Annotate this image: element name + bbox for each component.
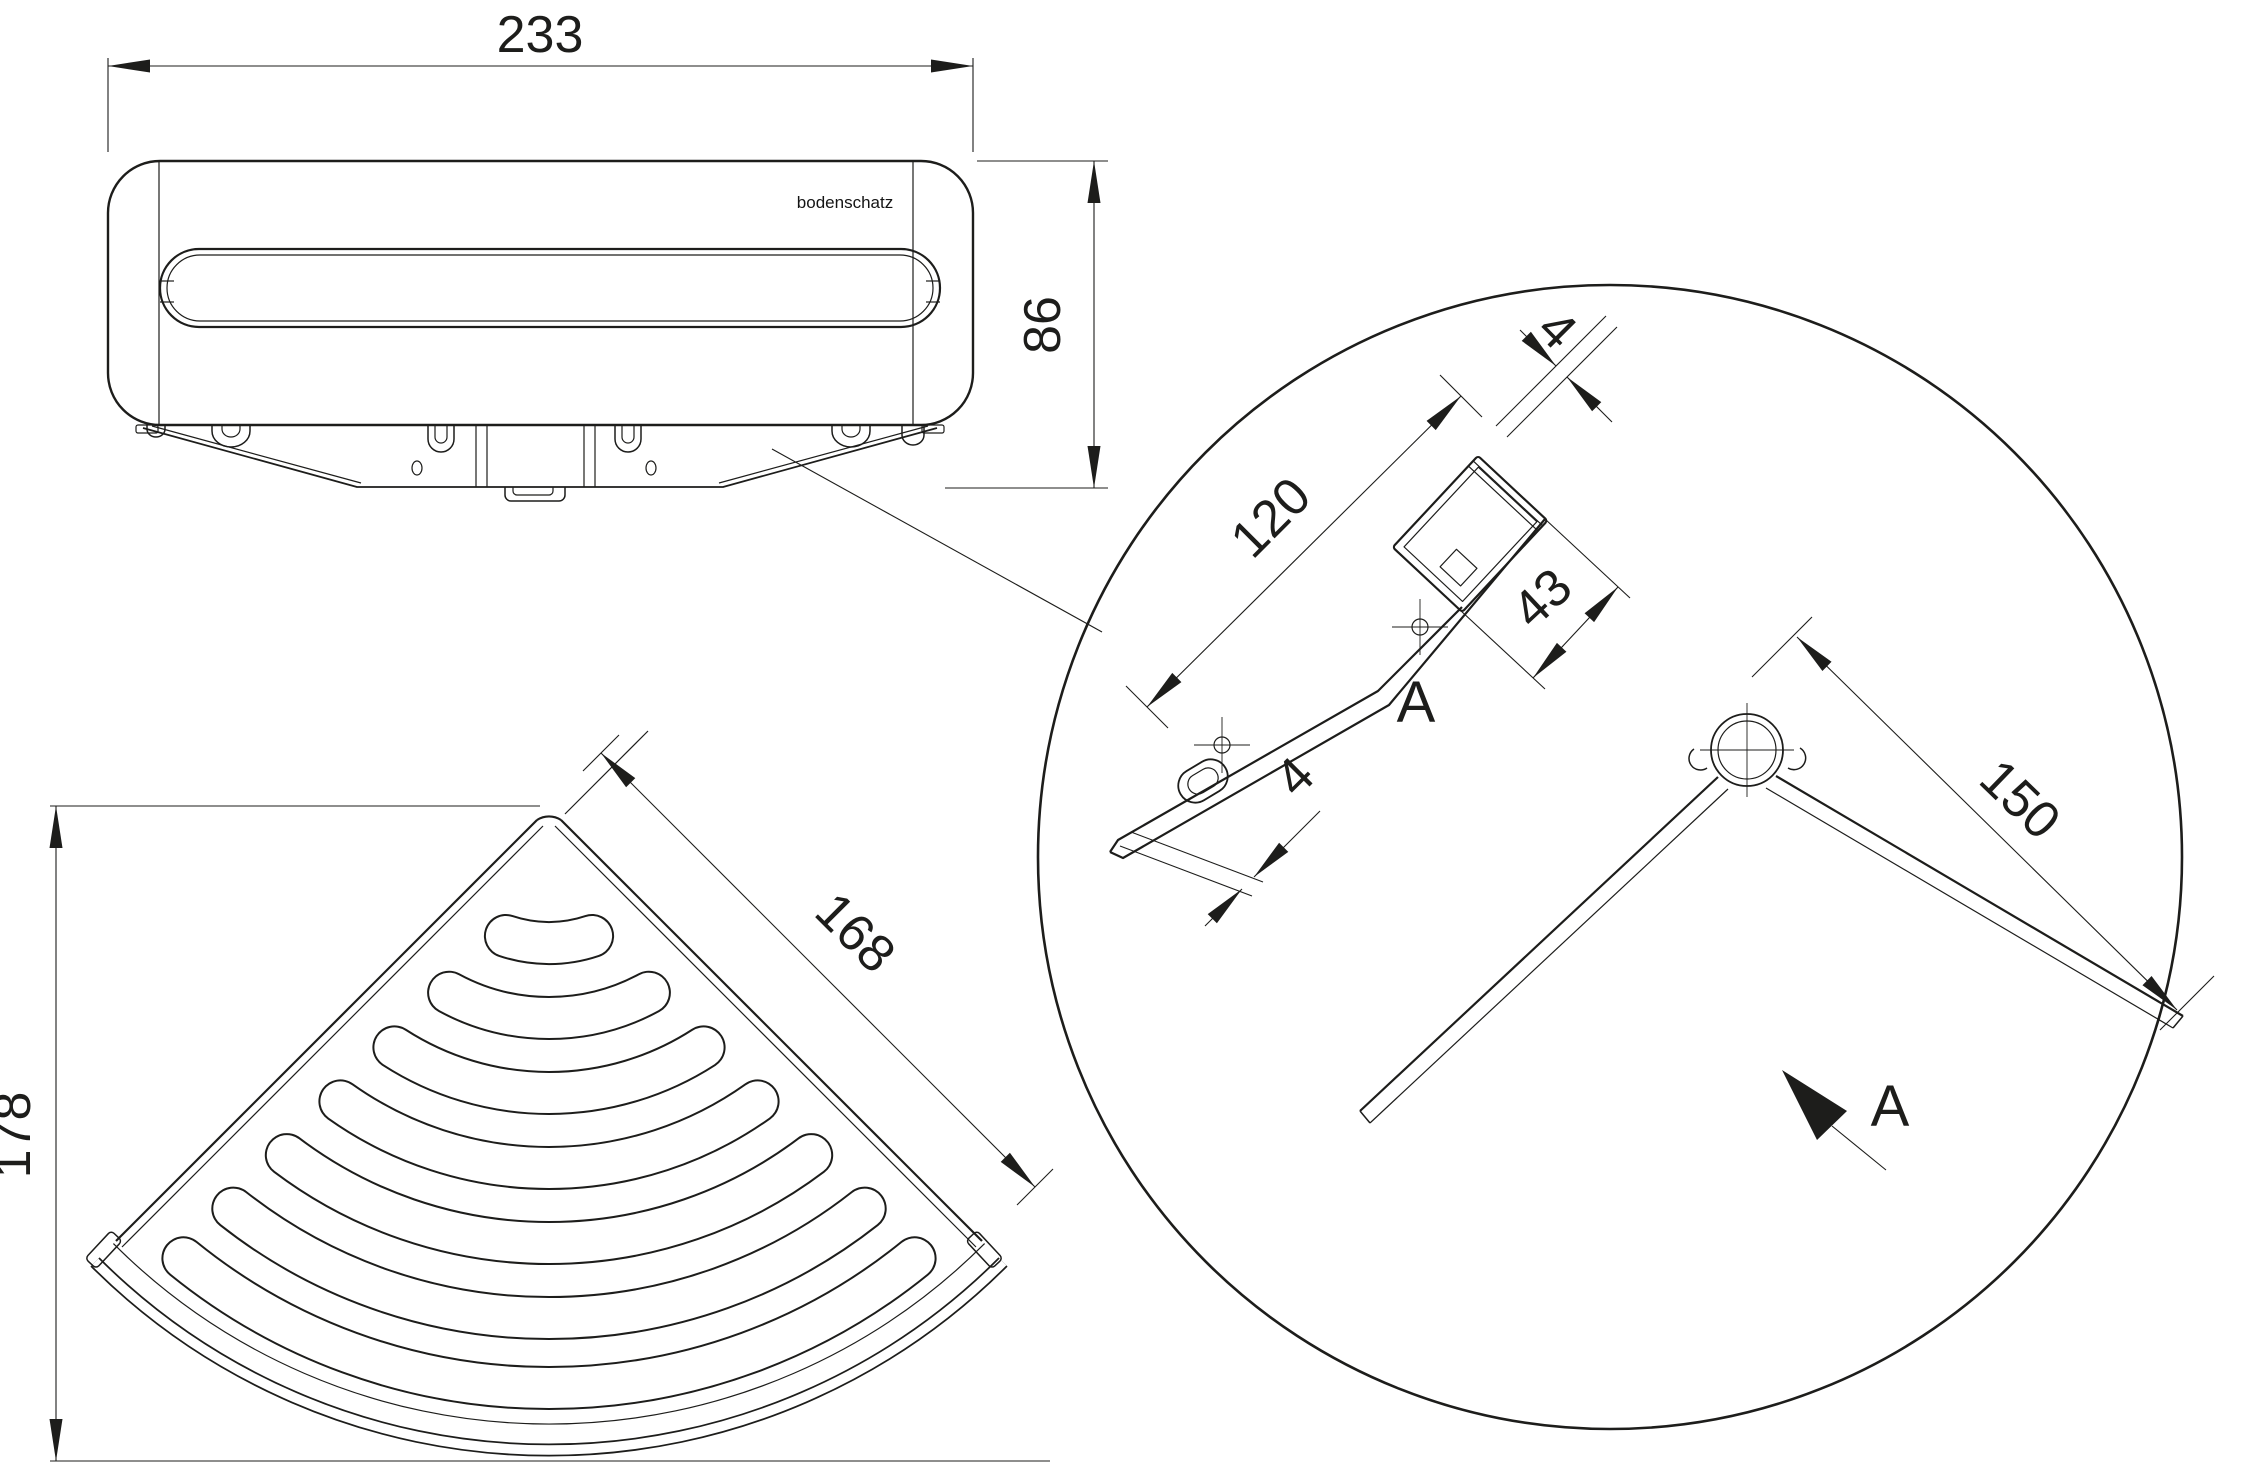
detail-boundary-circle — [1038, 285, 2182, 1429]
corner-bracket — [1360, 703, 2183, 1123]
dim-label-rail-length: 120 — [1220, 467, 1322, 569]
front-slot — [160, 249, 940, 327]
dim-plan-depth: 178 — [0, 806, 1050, 1461]
dim-rail-tip-thickness: 4 — [1120, 746, 1326, 926]
rail-section — [1110, 456, 1547, 858]
rim-end-clip — [966, 1231, 1003, 1269]
dim-front-width: 233 — [108, 6, 973, 152]
screw-clamp — [428, 425, 454, 452]
dim-label-clip-width: 43 — [1501, 558, 1583, 640]
front-view: bodenschatz — [108, 6, 1108, 632]
screw-clamp — [615, 425, 641, 452]
front-mounting-plate — [136, 425, 944, 501]
dim-label-rail-tip-thickness: 4 — [1264, 746, 1325, 807]
dim-label-rail-cap-thickness: 4 — [1526, 299, 1587, 360]
dim-label-front-width: 233 — [497, 6, 584, 64]
corner-boss — [1700, 703, 1794, 797]
technical-drawing-canvas: bodenschatz — [0, 0, 2257, 1474]
leader-line — [772, 449, 1102, 632]
dim-label-front-height: 86 — [1014, 296, 1072, 354]
dim-label-arm-length: 150 — [1968, 749, 2071, 851]
plate-hole — [412, 461, 422, 475]
dim-label-plan-depth: 178 — [0, 1092, 42, 1179]
dim-front-height: 86 — [945, 161, 1108, 488]
dim-arm-length: 150 — [1752, 617, 2214, 1030]
detail-circle-view: 120 4 43 4 A — [1038, 285, 2214, 1429]
dim-clip-width: 43 — [1460, 519, 1630, 689]
section-label-a: A — [1397, 670, 1436, 735]
section-arrow-label: A — [1871, 1074, 1910, 1139]
section-direction-arrow: A — [1782, 1070, 1910, 1170]
plan-drain-slots — [183, 936, 914, 1388]
boss-notch — [1788, 748, 1806, 770]
boss-notch — [1689, 749, 1707, 770]
dim-rail-cap-thickness: 4 — [1496, 299, 1617, 437]
plan-view: 168 178 — [0, 731, 1053, 1461]
dim-label-plan-edge: 168 — [804, 882, 906, 984]
plate-hole — [646, 461, 656, 475]
crosshair-marker — [1392, 599, 1448, 655]
crosshair-marker — [1194, 717, 1250, 773]
brand-logo-text: bodenschatz — [797, 193, 893, 212]
drawing-page: bodenschatz — [0, 0, 2257, 1474]
